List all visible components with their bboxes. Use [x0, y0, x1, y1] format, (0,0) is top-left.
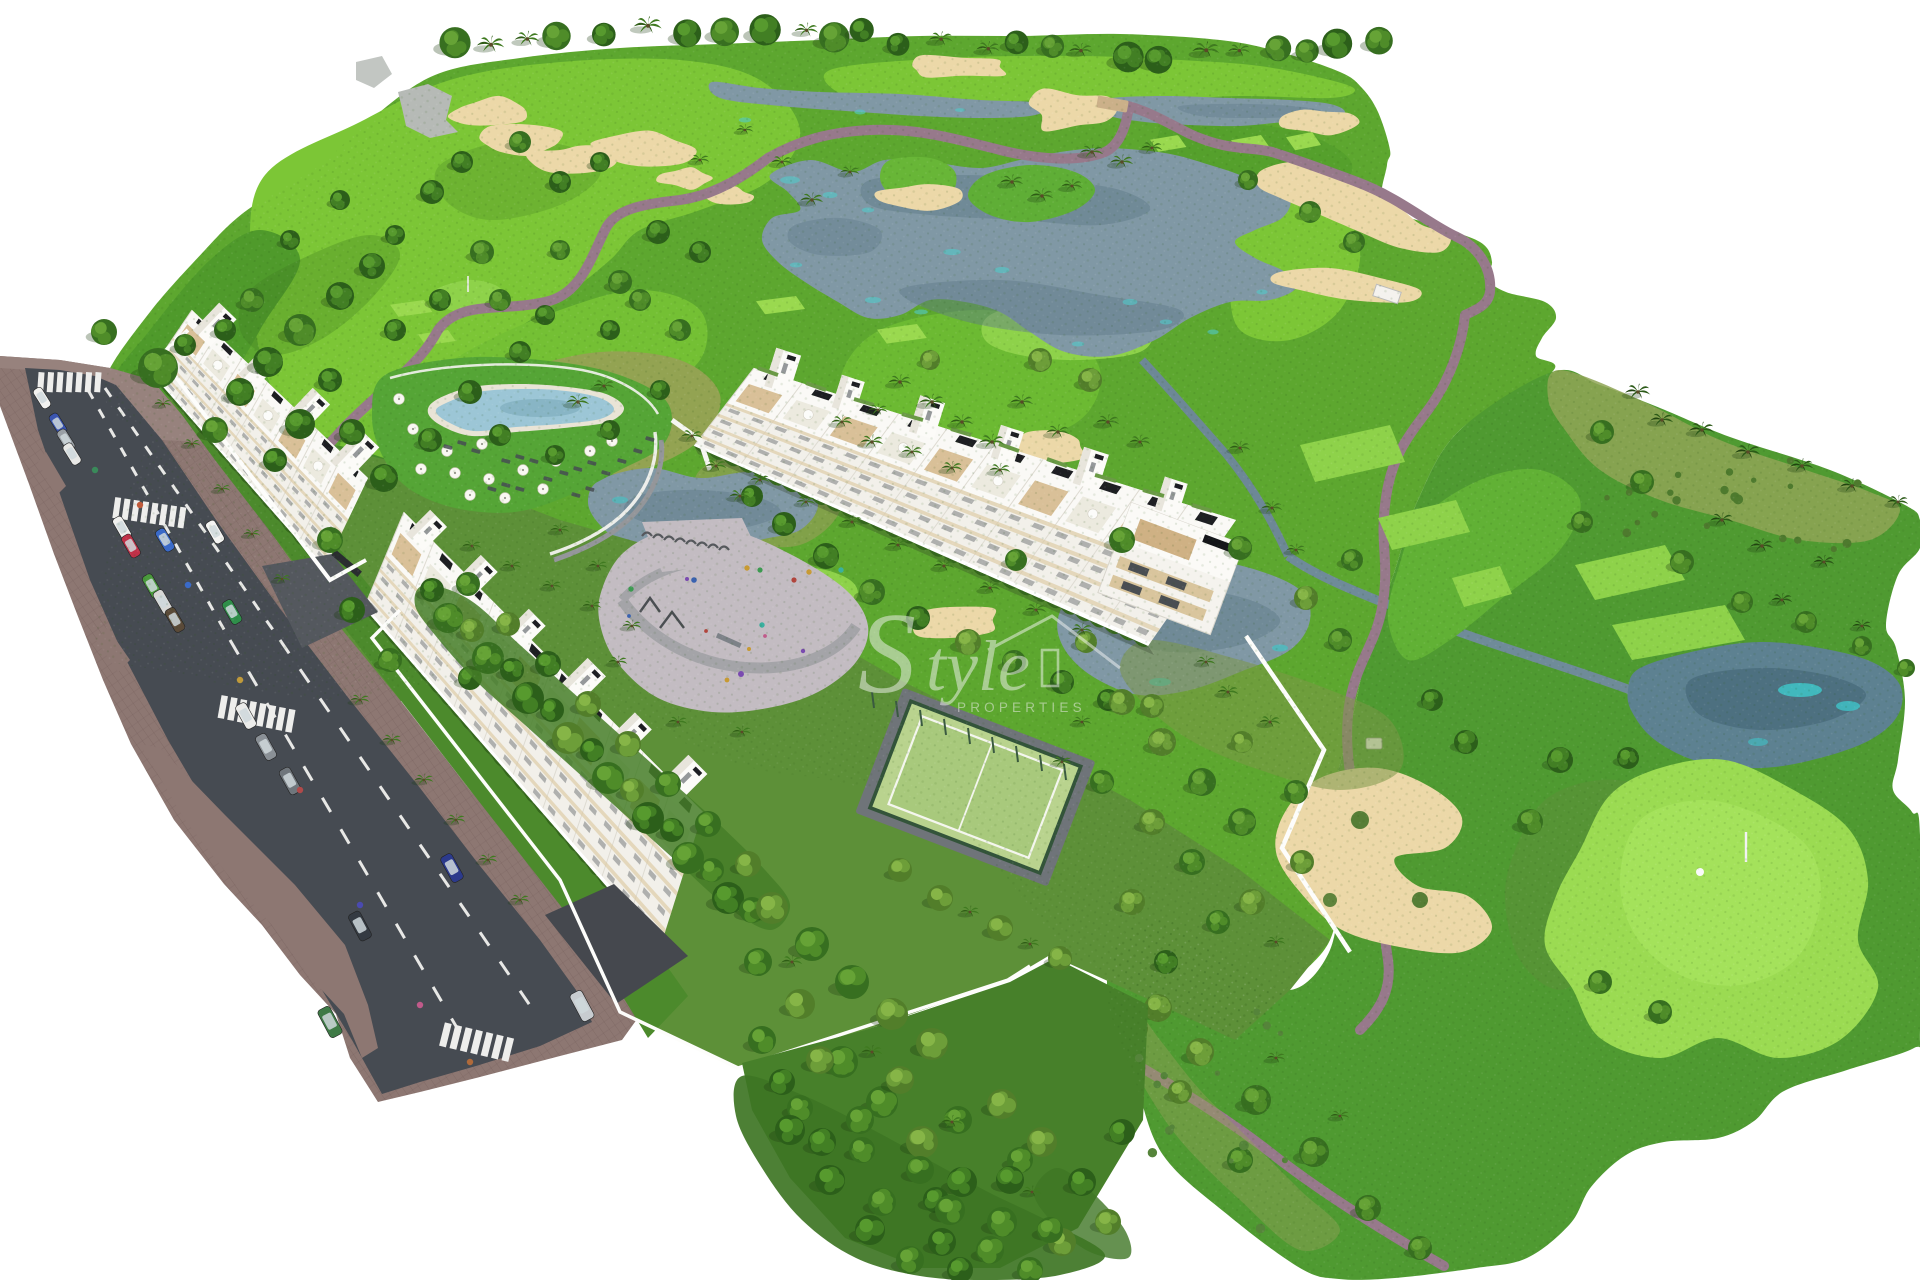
svg-text:S: S	[858, 590, 916, 718]
svg-text:PROPERTIES: PROPERTIES	[957, 700, 1086, 715]
svg-text:tyle: tyle	[926, 626, 1030, 706]
